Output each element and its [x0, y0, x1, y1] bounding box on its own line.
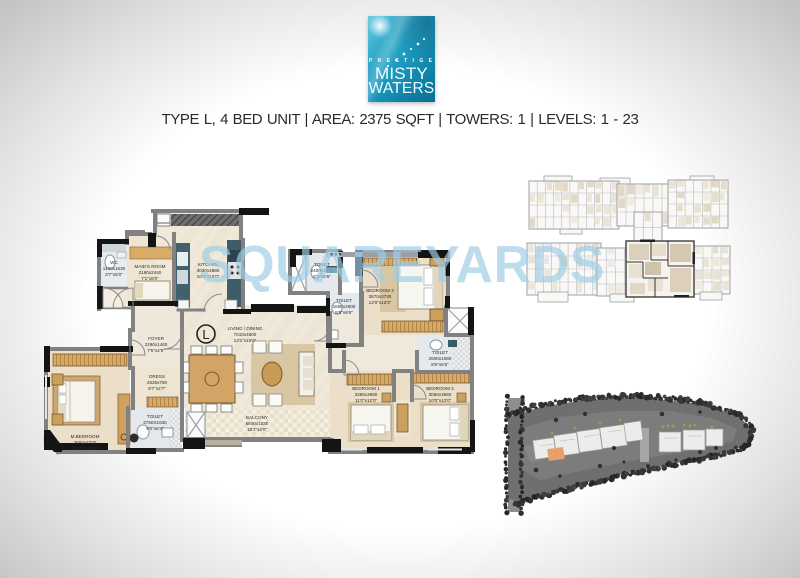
svg-text:FOYER: FOYER	[148, 336, 165, 341]
svg-text:9'0"x5'4": 9'0"x5'4"	[146, 426, 164, 431]
svg-text:12'0"x14'10": 12'0"x14'10"	[72, 446, 98, 451]
svg-text:1650x2600: 1650x2600	[333, 304, 356, 309]
svg-text:8'6"x5'6": 8'6"x5'6"	[431, 362, 449, 367]
svg-text:11'0"x12'0": 11'0"x12'0"	[355, 398, 378, 403]
svg-text:L: L	[202, 327, 209, 342]
svg-text:7010x4600: 7010x4600	[234, 332, 257, 337]
svg-text:M.BEDROOM: M.BEDROOM	[71, 434, 100, 439]
svg-text:10'0"x12'0": 10'0"x12'0"	[429, 398, 452, 403]
svg-text:5640x1030: 5640x1030	[246, 421, 269, 426]
svg-text:3660x4020: 3660x4020	[74, 440, 97, 445]
svg-text:BALCONY: BALCONY	[246, 415, 268, 420]
svg-text:8'7"x2'7": 8'7"x2'7"	[148, 386, 166, 391]
svg-text:3365x3660: 3365x3660	[355, 392, 378, 397]
svg-text:3060x3660: 3060x3660	[429, 392, 452, 397]
svg-text:5'5"x8'6": 5'5"x8'6"	[335, 310, 353, 315]
svg-text:BEDROOM 1: BEDROOM 1	[352, 386, 380, 391]
svg-text:2630x750: 2630x750	[147, 380, 168, 385]
svg-text:TOILET: TOILET	[336, 298, 352, 303]
svg-text:BEDROOM 2: BEDROOM 2	[426, 386, 454, 391]
svg-text:2750X1630: 2750X1630	[143, 420, 167, 425]
svg-text:7'6"x4'9": 7'6"x4'9"	[147, 348, 165, 353]
svg-text:DRESS: DRESS	[149, 374, 165, 379]
svg-text:TOILET: TOILET	[432, 350, 448, 355]
svg-text:12'0"x12'3": 12'0"x12'3"	[369, 300, 392, 305]
svg-text:LIVING / DINING: LIVING / DINING	[228, 326, 263, 331]
svg-text:2600x1690: 2600x1690	[429, 356, 452, 361]
svg-text:TOILET: TOILET	[147, 414, 163, 419]
svg-text:2290x1460: 2290x1460	[145, 342, 168, 347]
svg-text:13'1"x15'0": 13'1"x15'0"	[234, 338, 257, 343]
svg-text:18'2"x3'0": 18'2"x3'0"	[247, 427, 267, 432]
